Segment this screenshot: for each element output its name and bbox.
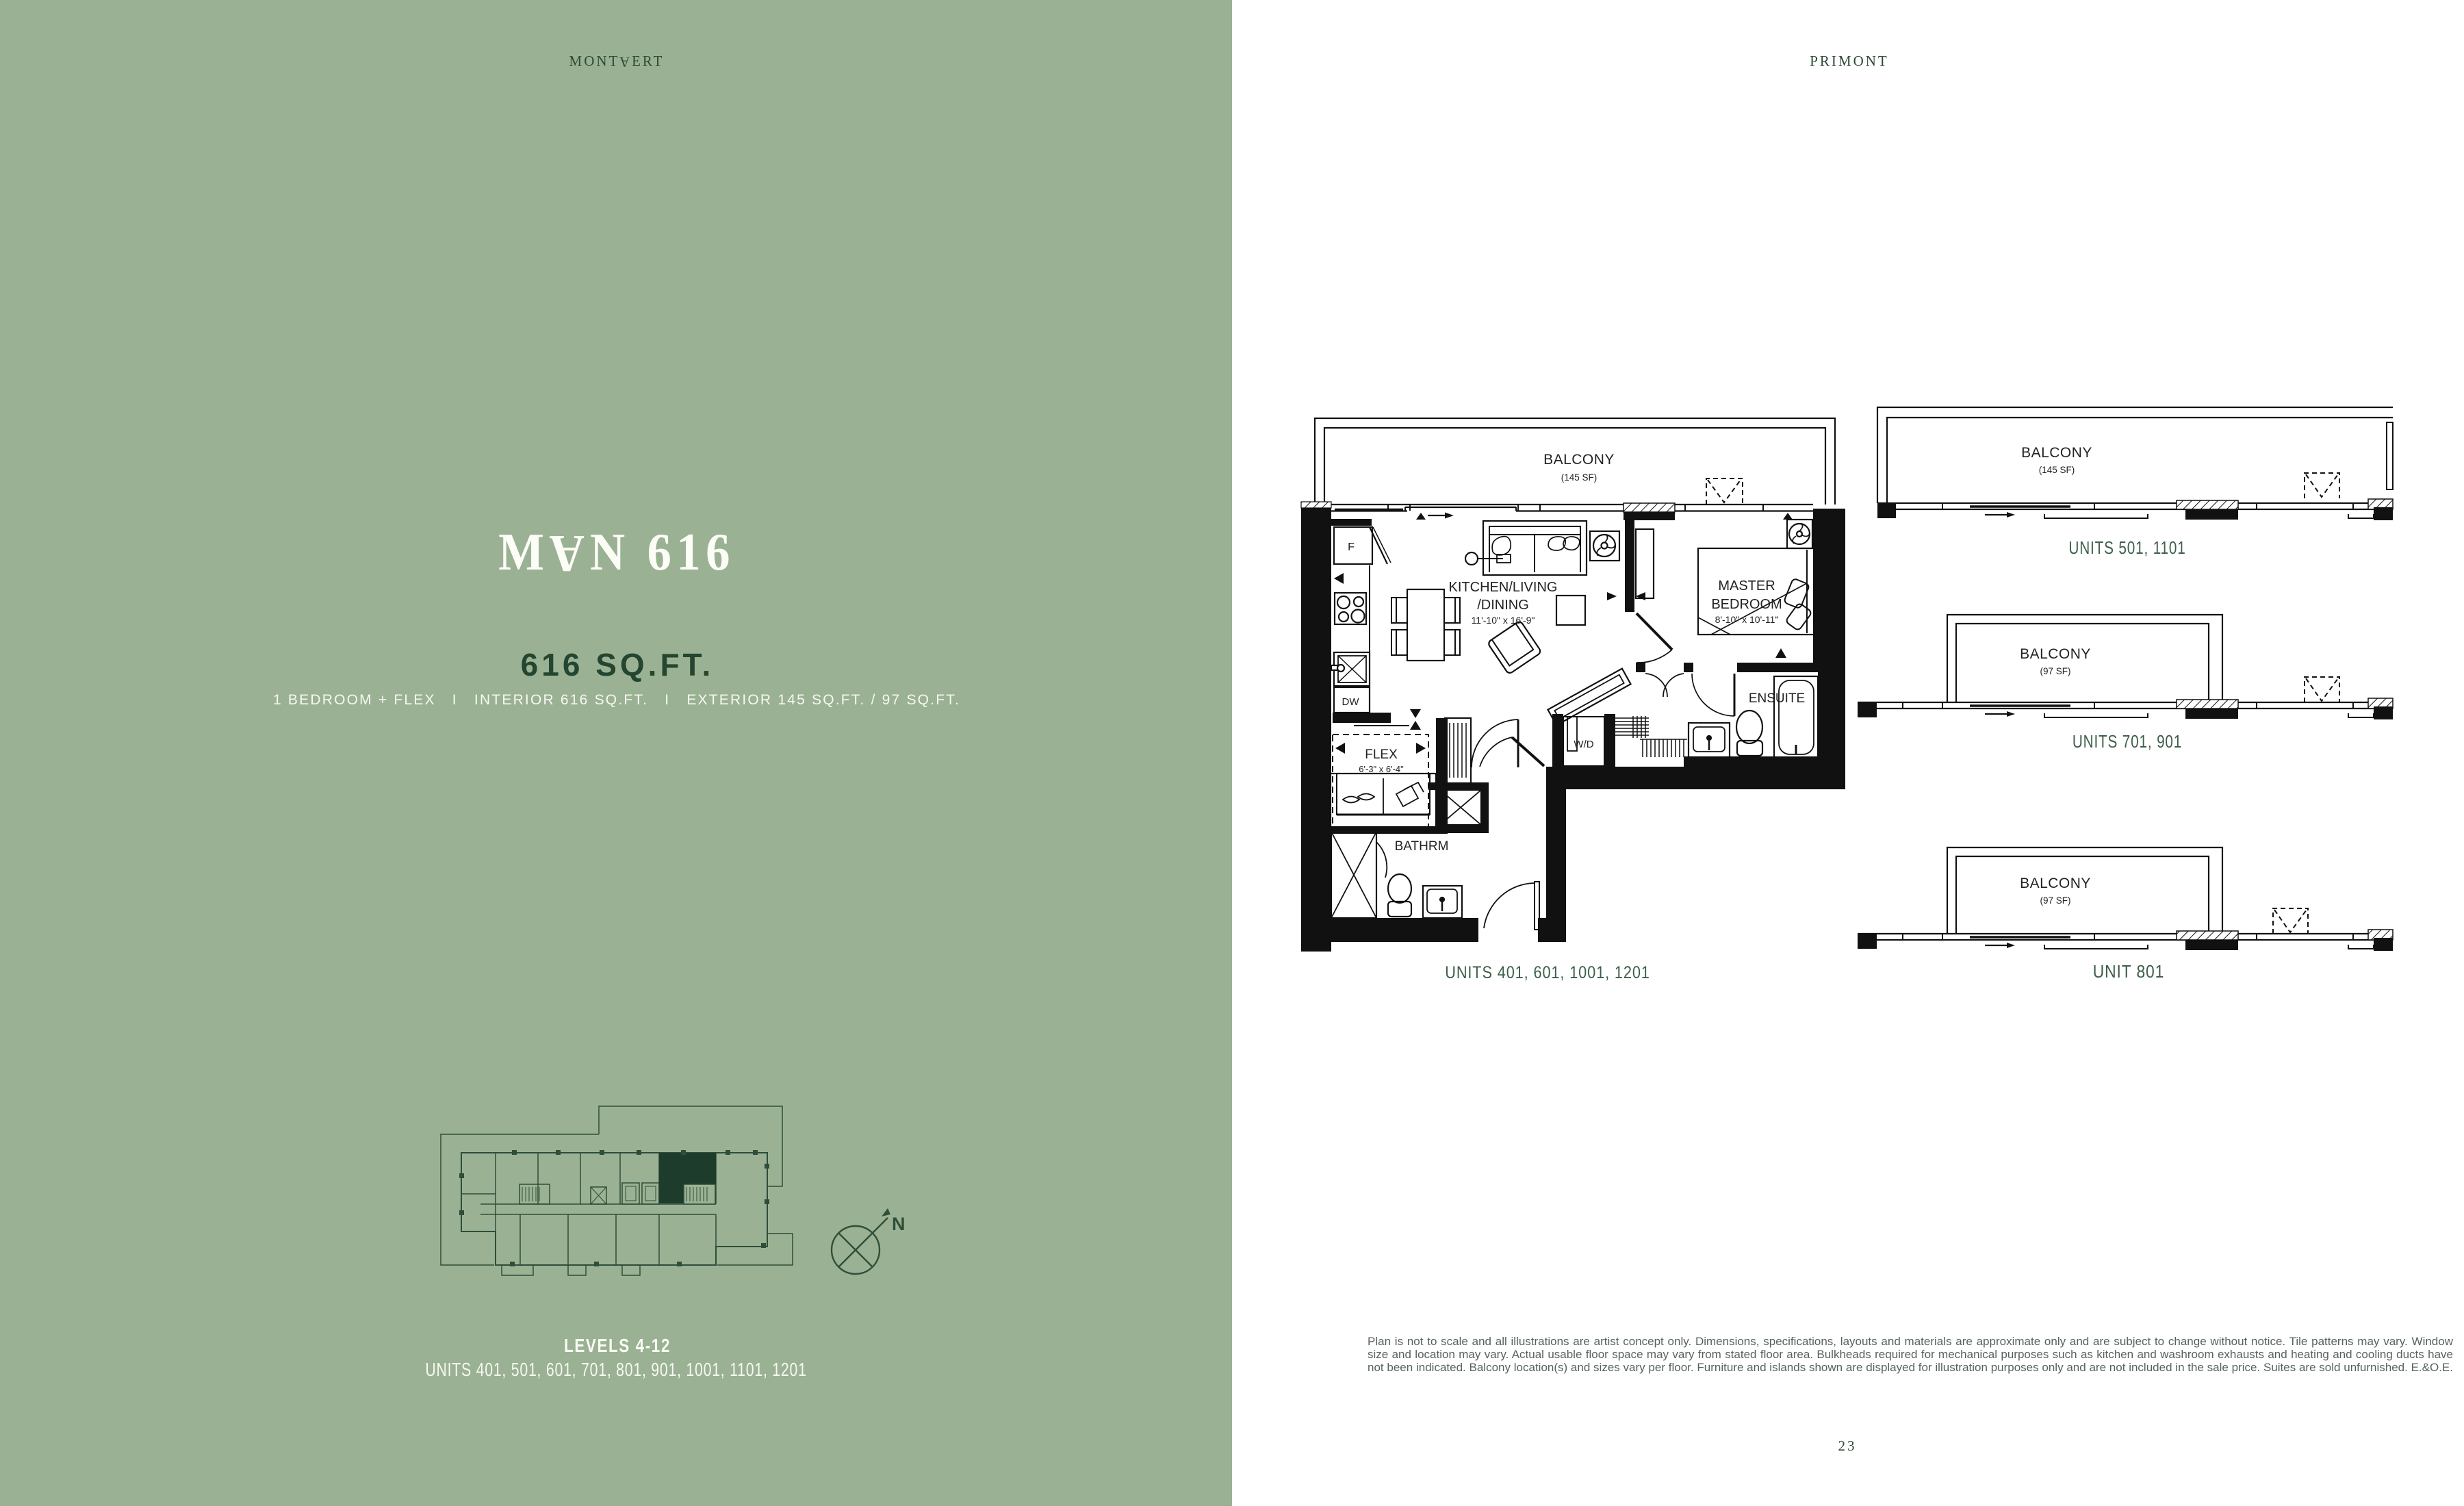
svg-text:11'-10" x 16'-9": 11'-10" x 16'-9" xyxy=(1472,615,1535,626)
svg-text:F: F xyxy=(1348,541,1355,553)
svg-text:6'-3" x 6'-4": 6'-3" x 6'-4" xyxy=(1359,764,1404,774)
svg-text:BALCONY: BALCONY xyxy=(1543,452,1615,468)
svg-text:(97 SF): (97 SF) xyxy=(2040,895,2070,906)
svg-text:BALCONY: BALCONY xyxy=(2020,646,2091,662)
svg-text:N: N xyxy=(892,1214,906,1234)
svg-text:8'-10" x 10'-11": 8'-10" x 10'-11" xyxy=(1715,614,1779,625)
svg-text:(145 SF): (145 SF) xyxy=(1561,472,1597,483)
svg-text:(97 SF): (97 SF) xyxy=(2040,666,2070,676)
svg-text:FLEX: FLEX xyxy=(1365,748,1398,762)
svg-text:DW: DW xyxy=(1342,696,1360,708)
svg-text:W/D: W/D xyxy=(1574,739,1593,750)
svg-text:BALCONY: BALCONY xyxy=(2020,876,2091,891)
svg-text:BEDROOM: BEDROOM xyxy=(1711,597,1782,612)
svg-text:/DINING: /DINING xyxy=(1477,598,1529,613)
svg-text:MASTER: MASTER xyxy=(1718,578,1775,594)
svg-text:BALCONY: BALCONY xyxy=(2021,445,2092,461)
svg-text:KITCHEN/LIVING: KITCHEN/LIVING xyxy=(1449,580,1558,595)
svg-text:(145 SF): (145 SF) xyxy=(2039,465,2075,475)
svg-text:ENSUITE: ENSUITE xyxy=(1749,691,1805,706)
svg-text:BATHRM: BATHRM xyxy=(1395,839,1449,854)
